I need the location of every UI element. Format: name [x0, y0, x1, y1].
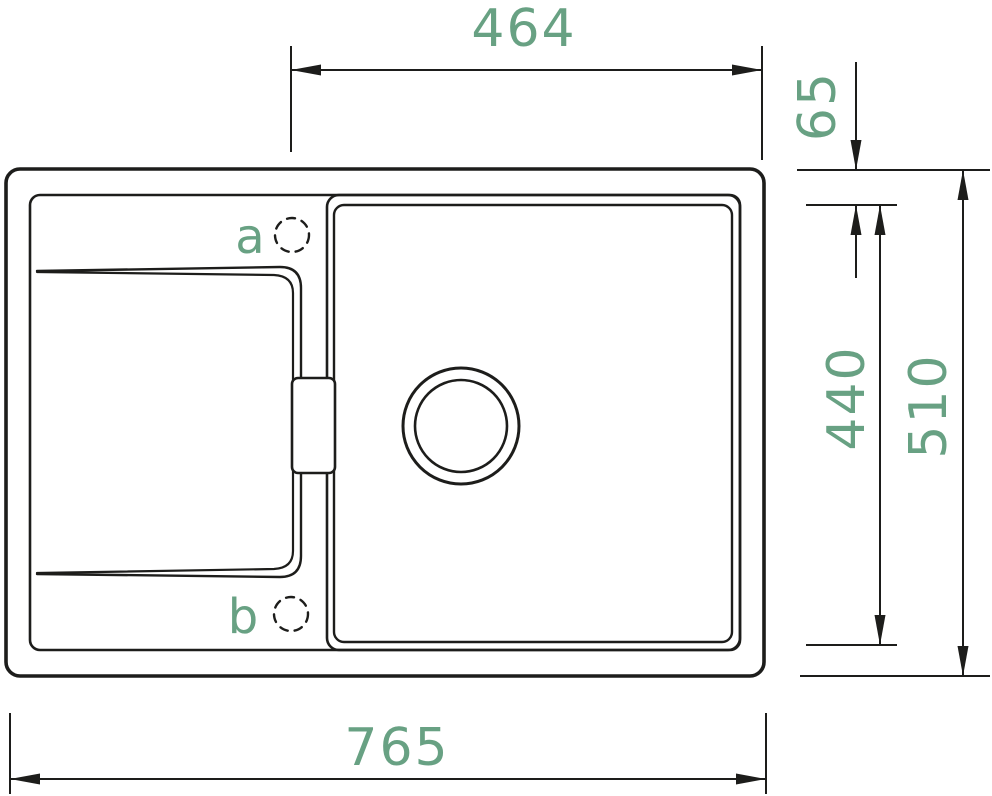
sink-inner-rim [30, 195, 740, 650]
drainer-groove-outer [37, 267, 301, 577]
arrowhead-right [736, 774, 766, 785]
dim-label-overall-depth: 510 [899, 353, 959, 458]
arrowhead-up [875, 205, 886, 235]
arrowhead-down [958, 646, 969, 676]
tap-hole-b-circle [274, 597, 308, 631]
arrowhead-left [291, 65, 321, 76]
dim-label-edge-offset: 65 [788, 71, 848, 141]
drawing-canvas: a b 464 65 440 510 [0, 0, 992, 796]
sink-outline [6, 169, 764, 676]
drain-outer-ring [403, 368, 519, 484]
tap-hole-a-circle [275, 218, 309, 252]
dimension-top-width [291, 46, 762, 160]
tap-hole-b-label: b [228, 589, 258, 645]
arrowhead-up [958, 170, 969, 200]
drainer-bowl-connector [292, 378, 335, 473]
arrowhead-up [851, 205, 862, 235]
dim-label-bowl-depth: 440 [817, 345, 877, 450]
arrowhead-left [10, 774, 40, 785]
sink-outer-edge [6, 169, 764, 676]
dim-label-overall-width: 765 [344, 718, 449, 778]
arrowhead-down [875, 615, 886, 645]
tap-hole-a-label: a [235, 209, 264, 265]
bowl-inner-contour [334, 205, 732, 642]
dim-label-top-width: 464 [471, 0, 576, 59]
drainer-groove-inner [37, 272, 293, 573]
arrowhead-down [851, 140, 862, 170]
drain-inner-ring [415, 380, 507, 472]
sink-dimension-drawing: a b 464 65 440 510 [0, 0, 992, 796]
arrowhead-right [732, 65, 762, 76]
bowl-outer-contour [327, 195, 740, 650]
